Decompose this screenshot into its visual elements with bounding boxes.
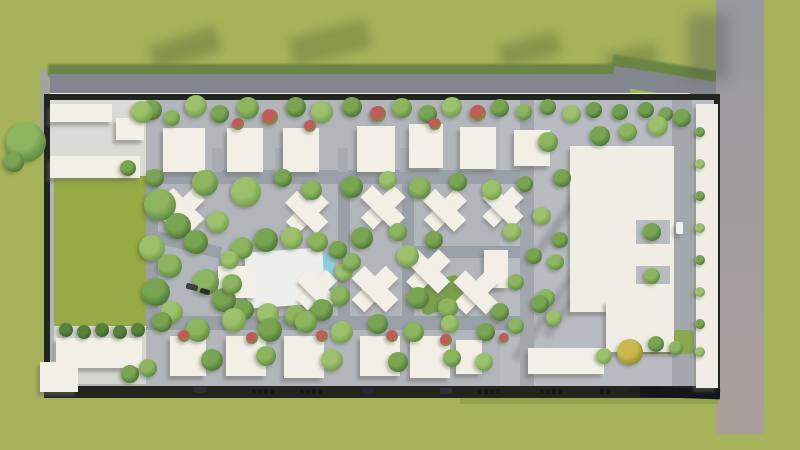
parking-mark [552, 389, 556, 394]
tree [442, 97, 462, 117]
west-building [40, 362, 78, 392]
boundary-building [696, 104, 718, 388]
tree [281, 227, 303, 249]
car [440, 388, 452, 394]
flowering-shrub [246, 332, 258, 344]
tree [425, 231, 443, 249]
tree [695, 287, 705, 297]
tree [669, 341, 683, 355]
tree [237, 97, 259, 119]
villa [227, 128, 263, 172]
autumn-tree [617, 339, 643, 365]
tree [211, 105, 229, 123]
tree [526, 248, 542, 264]
flowering-shrub [429, 118, 441, 130]
tree [596, 348, 612, 364]
tree [540, 99, 556, 115]
hedge-shrub [59, 323, 73, 337]
tree [207, 211, 229, 233]
tree [4, 152, 24, 172]
hedge-shrub [131, 323, 145, 337]
parking-mark [270, 389, 274, 394]
flowering-shrub [304, 120, 316, 132]
tree [404, 322, 424, 342]
parking-mark [300, 389, 304, 394]
parking-mark [306, 389, 310, 394]
tree [389, 223, 407, 241]
tree [695, 255, 705, 265]
car [194, 387, 206, 393]
tree-shadow-on-grass [287, 18, 372, 68]
villa [357, 126, 395, 172]
tree [491, 303, 509, 321]
tree [508, 318, 524, 334]
tree [139, 359, 157, 377]
parking-mark [490, 389, 494, 394]
tree [152, 312, 172, 332]
tree [258, 318, 282, 342]
tree [695, 127, 705, 137]
tree [222, 274, 242, 294]
parking-mark [258, 389, 262, 394]
parking-mark [540, 389, 544, 394]
tree [295, 311, 317, 333]
shadow-on-east-road [688, 14, 728, 80]
tree [644, 268, 660, 284]
tree [475, 353, 493, 371]
tree [379, 171, 397, 189]
tree [221, 251, 239, 269]
tree [302, 180, 322, 200]
tree [342, 97, 362, 117]
tree [185, 95, 207, 117]
tree [482, 180, 502, 200]
parking-mark [252, 389, 256, 394]
parking-mark [668, 389, 672, 394]
parking-mark [674, 389, 678, 394]
parking-mark [558, 389, 562, 394]
parking-mark [318, 389, 322, 394]
tree [341, 176, 363, 198]
parking-mark [600, 389, 604, 394]
tree [538, 132, 558, 152]
tree [331, 321, 353, 343]
tree [695, 223, 705, 233]
tree [441, 315, 459, 333]
south-building [528, 348, 604, 374]
villa [284, 336, 324, 378]
tree [256, 346, 276, 366]
tree [254, 228, 278, 252]
tree [388, 352, 408, 372]
tree [548, 254, 564, 270]
tree [643, 223, 661, 241]
tree [392, 98, 412, 118]
tree [619, 123, 637, 141]
hedge-shrub [95, 323, 109, 337]
tree [491, 99, 509, 117]
tree [503, 223, 521, 241]
driveway [212, 148, 222, 172]
tree [146, 169, 164, 187]
villa [460, 127, 496, 169]
parking-mark [312, 389, 316, 394]
villa [163, 128, 205, 172]
flowering-shrub [499, 333, 509, 343]
tree [531, 295, 549, 313]
tree [321, 349, 343, 371]
palm-tree [638, 102, 654, 118]
car [628, 388, 640, 394]
tree [158, 254, 182, 278]
tree [695, 319, 705, 329]
parking-mark [264, 389, 268, 394]
hedge-shrub [77, 325, 91, 339]
hedge-shrub [113, 325, 127, 339]
tree [516, 104, 532, 120]
parking-mark [606, 389, 610, 394]
flowering-shrub [232, 118, 244, 130]
tree [695, 159, 705, 169]
tree [311, 101, 333, 123]
tree [164, 110, 180, 126]
tree [274, 169, 292, 187]
tree [184, 230, 208, 254]
tree [546, 310, 562, 326]
tree [231, 177, 261, 207]
villa [409, 124, 443, 168]
tree [407, 287, 429, 309]
tree [533, 207, 551, 225]
master-plan-aerial-rendering [0, 0, 800, 450]
tree [343, 253, 361, 271]
flowering-shrub [440, 334, 452, 346]
tree [330, 286, 350, 306]
car [676, 222, 683, 234]
car [362, 388, 374, 394]
tree [695, 347, 705, 357]
tree [563, 105, 581, 123]
villa [283, 128, 319, 172]
amenity-building [50, 104, 112, 122]
flowering-shrub [262, 109, 278, 125]
tree [131, 101, 153, 123]
driveway [338, 148, 348, 172]
north-road [50, 74, 630, 94]
palm-tree [612, 104, 628, 120]
tree [351, 227, 373, 249]
tree [443, 349, 461, 367]
tree [517, 176, 533, 192]
tree [397, 245, 419, 267]
tree [695, 191, 705, 201]
tree [120, 160, 136, 176]
tree [121, 365, 139, 383]
tree [673, 109, 691, 127]
palm-tree [586, 102, 602, 118]
central-lawn [54, 176, 146, 326]
tree [192, 170, 218, 196]
tree [222, 308, 246, 332]
tree [590, 126, 610, 146]
parking-mark [662, 389, 666, 394]
parking-mark [484, 389, 488, 394]
tree [477, 323, 495, 341]
tree [409, 177, 431, 199]
tree [449, 173, 467, 191]
flowering-shrub [316, 330, 328, 342]
tree [186, 318, 210, 342]
tree [648, 336, 664, 352]
tree [508, 274, 524, 290]
tree [201, 349, 223, 371]
flowering-shrub [178, 330, 190, 342]
tree [308, 232, 328, 252]
parking-mark [546, 389, 550, 394]
parking-mark [478, 389, 482, 394]
flowering-shrub [370, 106, 386, 122]
tree [552, 232, 568, 248]
flowering-shrub [470, 105, 486, 121]
tree [368, 314, 388, 334]
flowering-shrub [386, 330, 398, 342]
tree [648, 116, 668, 136]
tree [286, 97, 306, 117]
parking-mark [496, 389, 500, 394]
tree [553, 169, 571, 187]
